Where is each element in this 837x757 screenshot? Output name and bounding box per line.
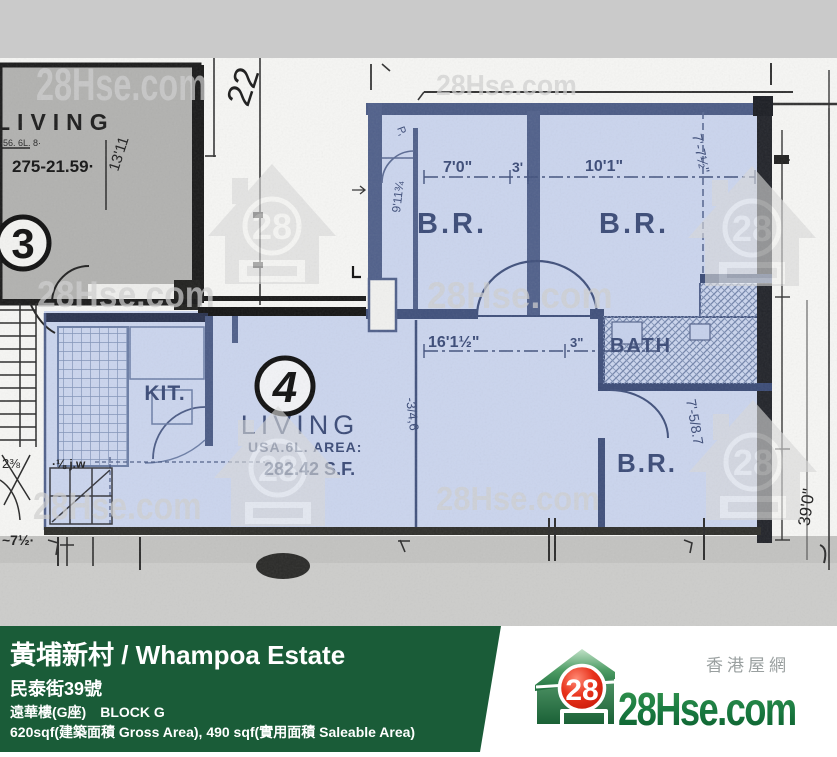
svg-text:28Hse.com: 28Hse.com <box>618 683 796 735</box>
svg-text:28: 28 <box>565 674 598 707</box>
svg-text:民泰街39號: 民泰街39號 <box>10 678 102 699</box>
svg-text:620sqf(建築面積 Gross Area), 490 s: 620sqf(建築面積 Gross Area), 490 sqf(實用面積 Sa… <box>10 724 415 740</box>
svg-text:黃埔新村 / Whampoa Estate: 黃埔新村 / Whampoa Estate <box>10 640 345 670</box>
svg-text:香港屋網: 香港屋網 <box>706 656 790 675</box>
svg-text:遠華樓(G座) BLOCK G: 遠華樓(G座) BLOCK G <box>10 704 165 720</box>
